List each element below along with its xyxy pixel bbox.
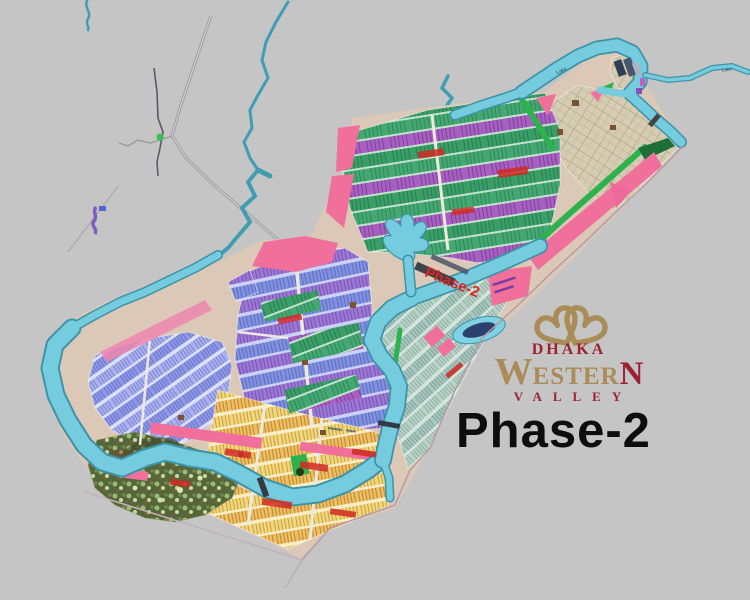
dhaka-western-valley-map-image: Phase-2 Lake Lake WESTERN DHAKA VALLEY P…: [0, 0, 750, 600]
brand-wordmark: WESTERN DHAKA VALLEY: [486, 336, 652, 412]
brand-dhaka: DHAKA: [486, 341, 652, 359]
brand-western-n: N: [620, 356, 644, 392]
master-plan-map: Phase-2 Lake Lake: [0, 0, 750, 600]
road-junction-green-dot: [157, 134, 164, 141]
brand-western-mid: ESTER: [533, 363, 620, 390]
phase-title: Phase-2: [456, 403, 716, 459]
